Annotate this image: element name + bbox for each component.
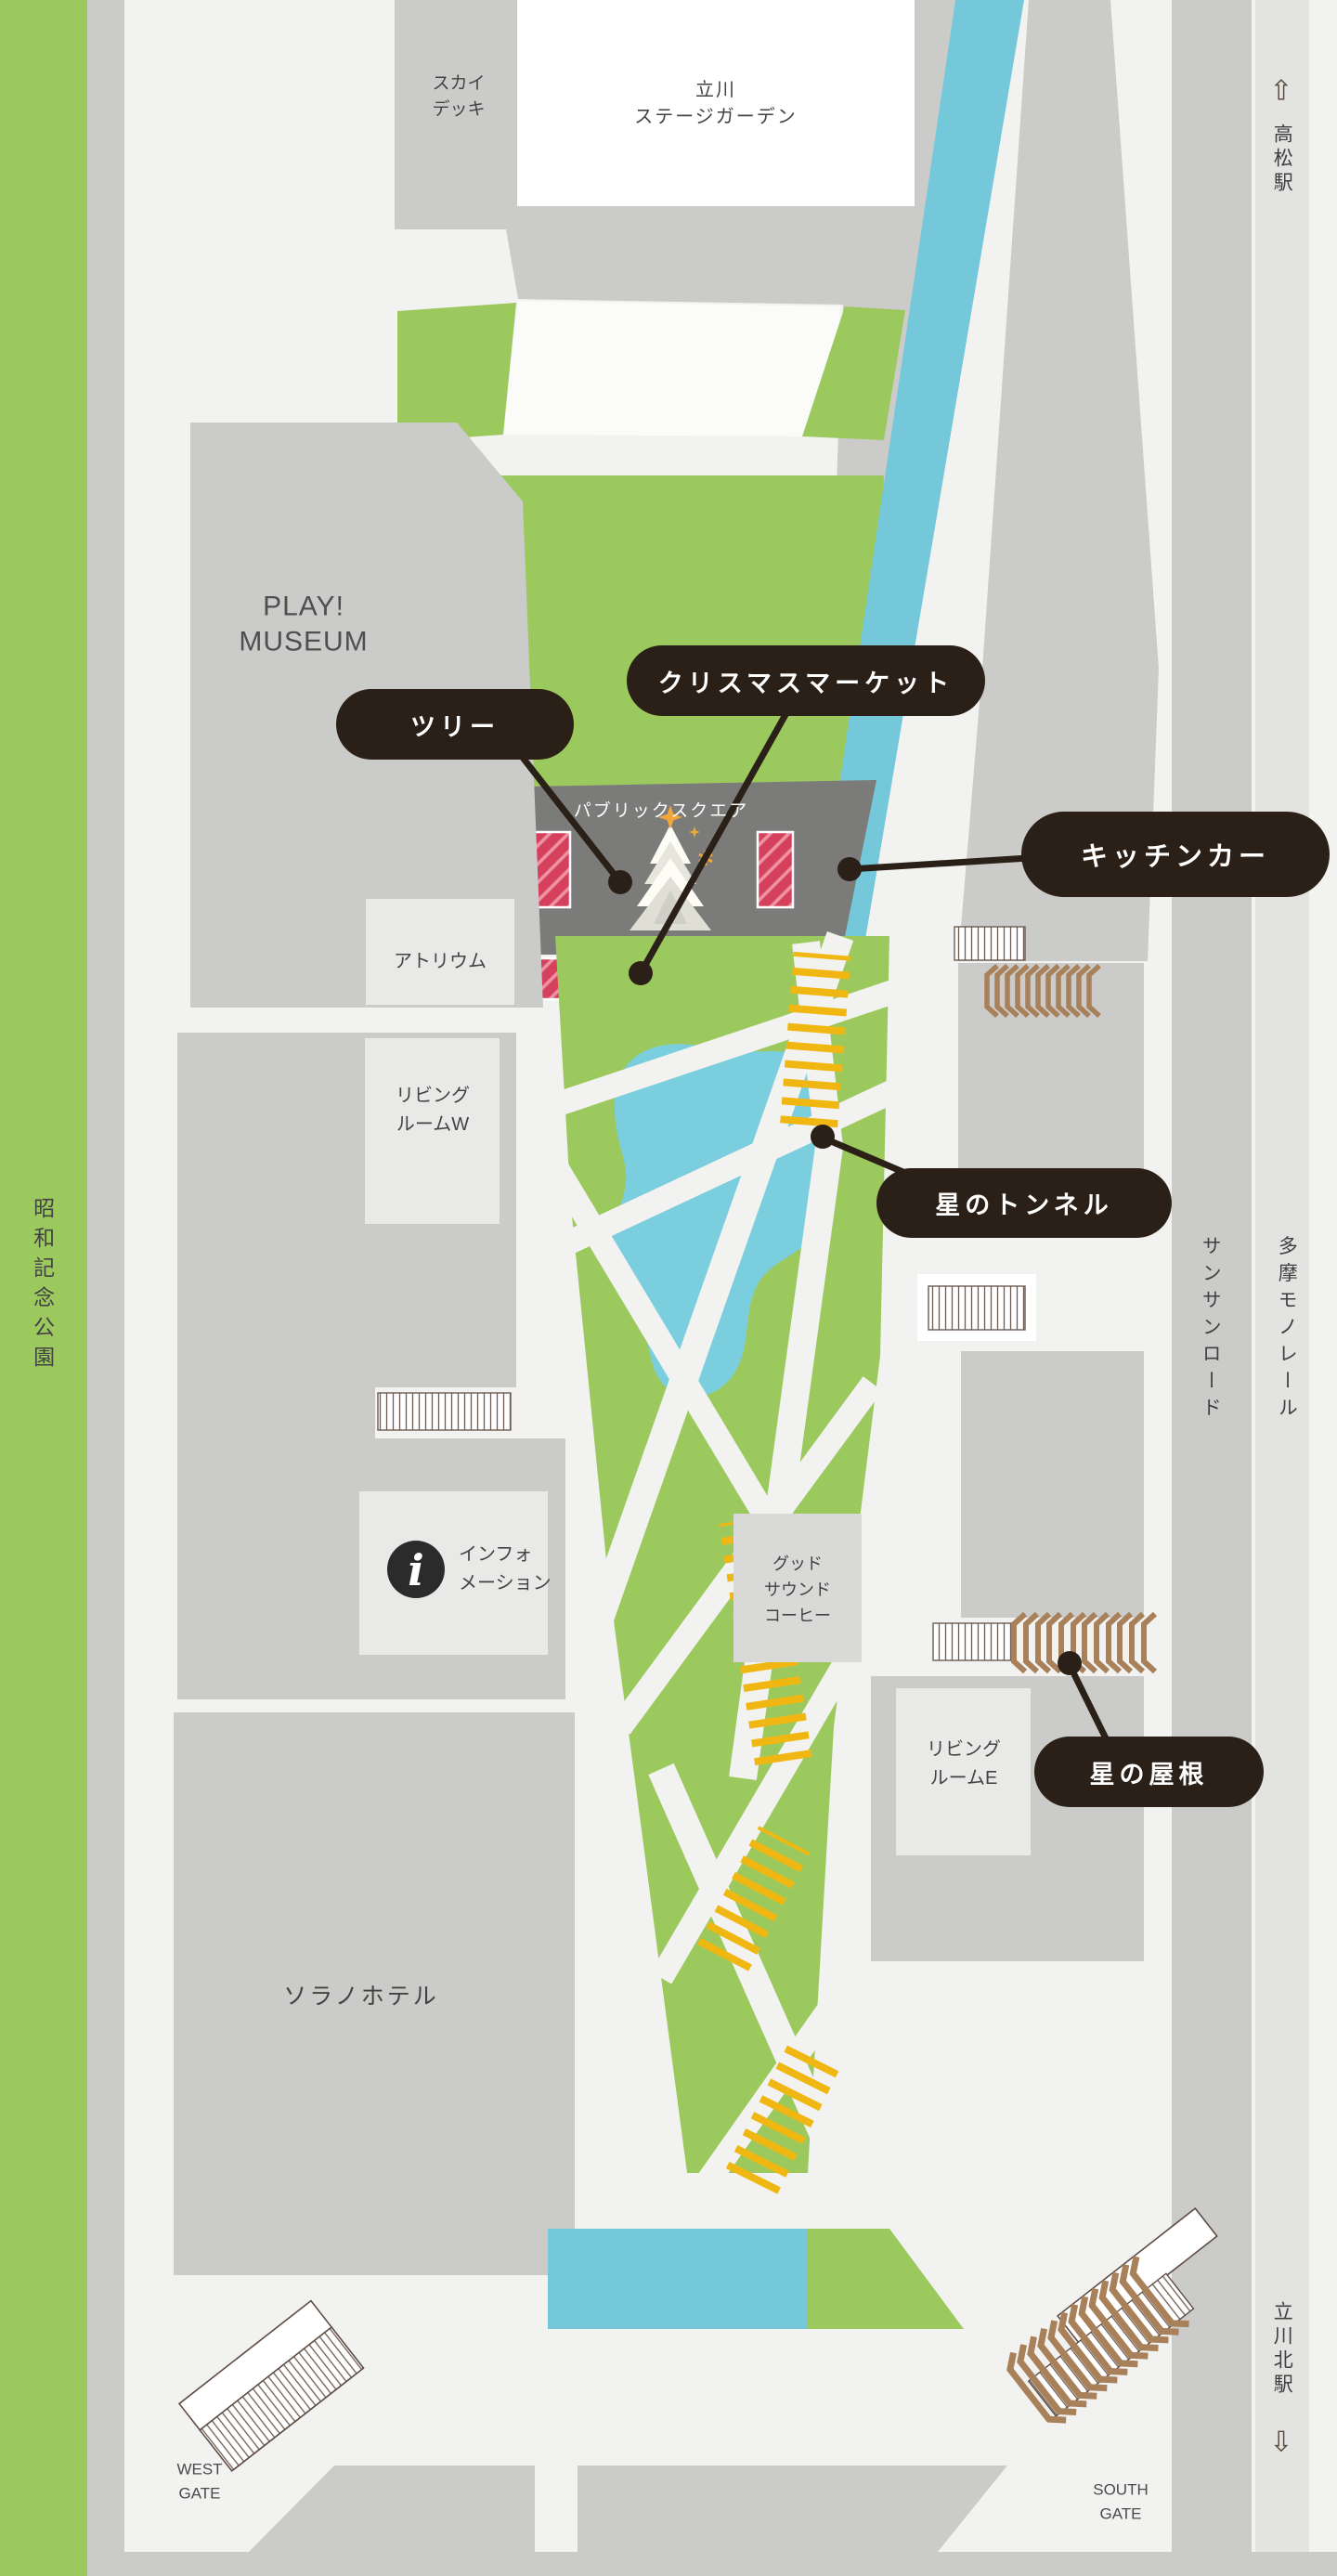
bottom-block-mid [578,2465,1007,2552]
label-tachikawa-kita-station: 立川北駅 [1267,2301,1295,2398]
label-sky-deck: スカイ デッキ [432,71,485,122]
callout-christmas-market[interactable]: クリスマスマーケット [627,645,985,716]
label-information: インフォ メーション [459,1541,552,1598]
east-block-mid [961,1351,1144,1618]
takamatsu-direction-arrow-icon: ⇧ [1269,75,1292,108]
west-road [87,0,124,2576]
kitchen-car-spot-right [758,832,793,907]
label-living-room-w: リビング ルームW [396,1082,470,1139]
bottom-pool [548,2229,808,2329]
callout-star-tunnel[interactable]: 星のトンネル [876,1168,1172,1238]
kitchen-car-spot-left [535,832,570,907]
label-tama-monorail: 多摩モノレール [1272,1236,1300,1425]
tachikawa-kita-direction-arrow-icon: ⇩ [1269,2426,1292,2459]
callout-star-roof[interactable]: 星の屋根 [1034,1737,1264,1807]
label-public-square: パブリックスクエア [574,799,748,825]
information-icon: i [387,1541,445,1598]
label-showa-kinen-park: 昭和記念公園 [26,1197,57,1375]
callout-kitchen-car[interactable]: キッチンカー [1021,812,1330,897]
label-atrium: アトリウム [394,949,487,976]
label-living-room-e: リビング ルームE [927,1736,1001,1793]
label-sorano-hotel: ソラノホテル [283,1980,439,2013]
label-takamatsu-station: 高松駅 [1267,124,1295,196]
label-play-museum: PLAY! MUSEUM [239,590,368,659]
callout-tree[interactable]: ツリー [336,689,574,760]
event-map: i 昭和記念公園 スカイ デッキ 立川 ステージガーデン ⇧ 高松駅 PLAY!… [0,0,1337,2576]
label-stage-garden: 立川 ステージガーデン [634,77,798,131]
green-flank-left [397,303,516,442]
bottom-road [123,2552,1337,2576]
label-west-gate: WEST GATE [176,2458,222,2507]
label-sunsun-road: サンサンロード [1196,1236,1224,1425]
upper-plaza [501,301,840,436]
label-south-gate: SOUTH GATE [1093,2478,1149,2528]
label-good-sound-coffee: グッド サウンド コーヒー [764,1552,831,1630]
map-canvas: i [0,0,1337,2576]
svg-text:i: i [408,1545,423,1595]
